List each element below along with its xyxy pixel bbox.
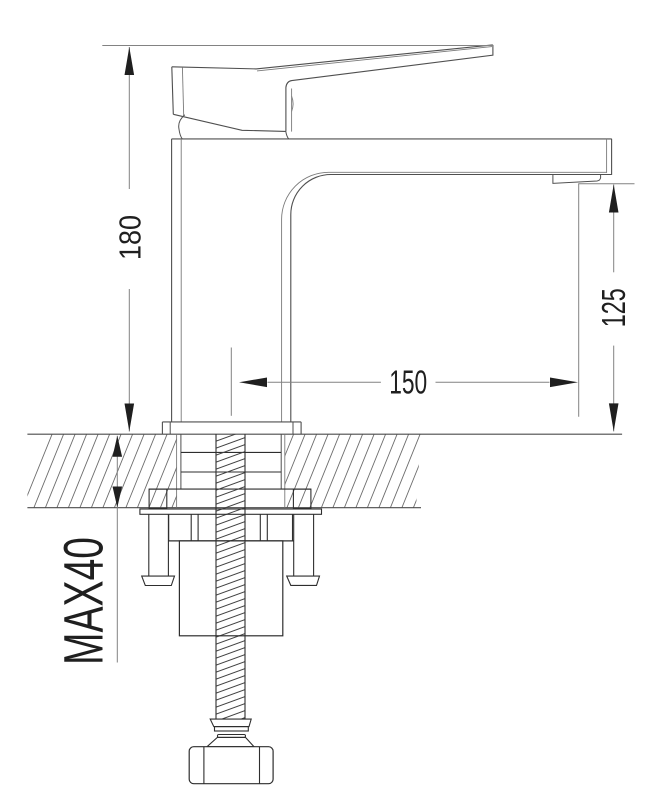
- svg-text:150: 150: [389, 363, 427, 400]
- svg-text:125: 125: [595, 288, 632, 327]
- svg-text:MAX40: MAX40: [52, 537, 115, 665]
- svg-text:180: 180: [113, 215, 148, 260]
